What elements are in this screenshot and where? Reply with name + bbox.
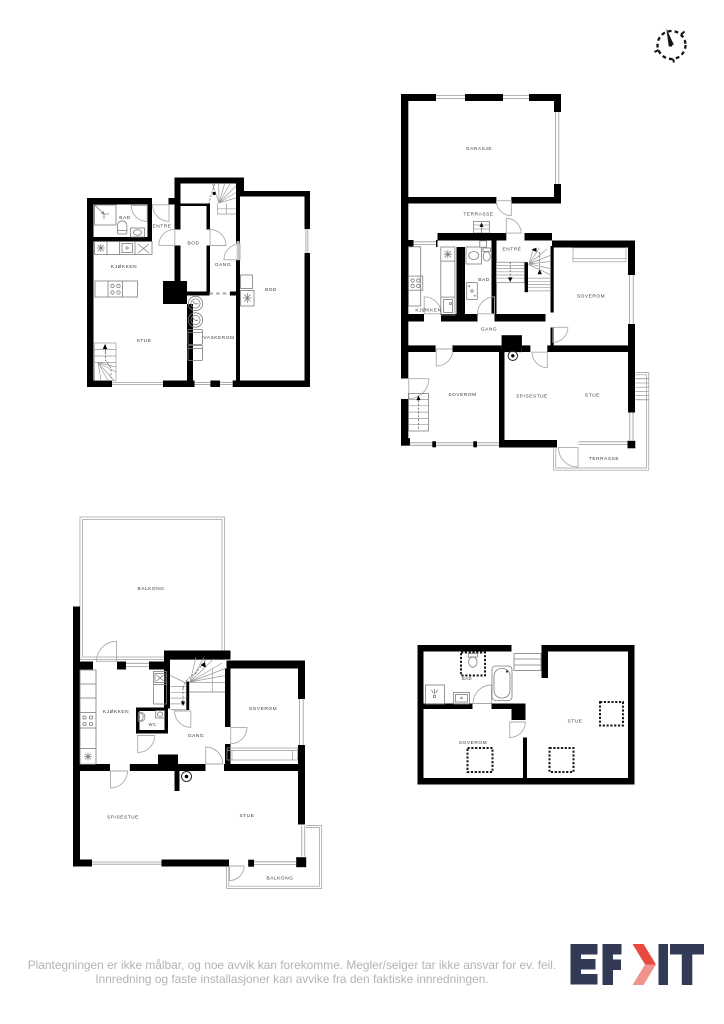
svg-text:STUE: STUE [568,719,583,725]
svg-text:STUE: STUE [585,393,600,399]
svg-text:VASKEROM: VASKEROM [203,335,234,341]
svg-text:BOD: BOD [187,241,199,247]
svg-text:BALKONG: BALKONG [266,876,293,882]
svg-text:SOVEROM: SOVEROM [249,706,277,712]
svg-text:BAD: BAD [119,215,131,221]
svg-text:SOVEROM: SOVEROM [577,294,605,300]
svg-text:TERRASSE: TERRASSE [463,212,493,218]
svg-text:ENTRE: ENTRE [152,224,171,230]
svg-text:GANG: GANG [481,327,497,333]
svg-text:WC: WC [149,722,157,727]
svg-text:STUE: STUE [240,813,255,819]
svg-text:GANG: GANG [188,733,204,739]
svg-text:KJØKKEN: KJØKKEN [103,709,129,715]
svg-text:GARASJE: GARASJE [466,146,492,152]
svg-text:BAD: BAD [478,277,490,283]
svg-text:KJØKKEN: KJØKKEN [415,308,441,314]
svg-text:BAD: BAD [462,676,472,681]
svg-text:SOVEROM: SOVEROM [448,392,476,398]
svg-text:BOD: BOD [265,287,277,293]
svg-text:TERRASSE: TERRASSE [589,456,619,462]
svg-text:KJØKKEN: KJØKKEN [111,264,137,270]
svg-text:Plantegningen er ikke målbar,: Plantegningen er ikke målbar, og noe avv… [28,958,557,972]
svg-text:SPISESTUE: SPISESTUE [107,815,139,821]
svg-text:SOVEROM: SOVEROM [459,740,487,746]
svg-text:Innredning og faste installasj: Innredning og faste installasjoner kan a… [95,972,488,986]
svg-text:GANG: GANG [215,262,231,268]
svg-text:SPISESTUE: SPISESTUE [516,394,548,400]
svg-text:ENTRÉ: ENTRÉ [502,246,521,253]
svg-text:BALKONG: BALKONG [137,586,164,592]
svg-text:STUE: STUE [137,338,152,344]
